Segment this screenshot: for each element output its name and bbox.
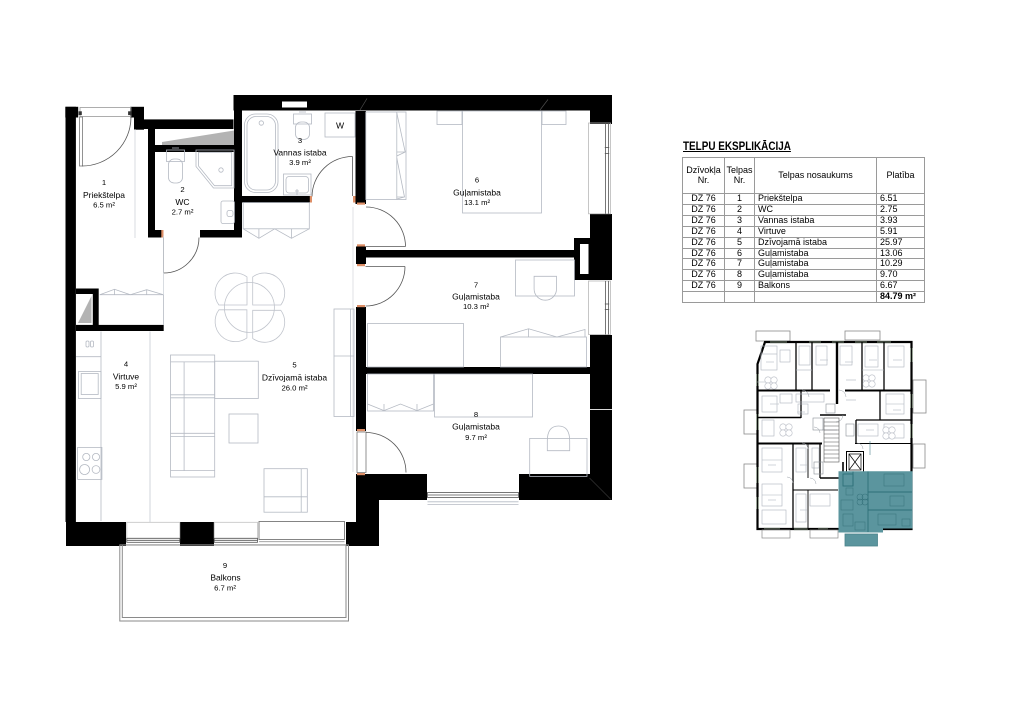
- svg-text:Guļamistaba: Guļamistaba: [453, 188, 501, 198]
- svg-text:3.9 m²: 3.9 m²: [289, 158, 311, 167]
- svg-text:1: 1: [102, 178, 106, 187]
- svg-text:5.9 m²: 5.9 m²: [115, 382, 137, 391]
- svg-text:Priekštelpa: Priekštelpa: [83, 190, 125, 200]
- svg-text:8: 8: [474, 410, 478, 419]
- svg-text:6.5 m²: 6.5 m²: [93, 201, 115, 210]
- svg-text:26.0 m²: 26.0 m²: [281, 384, 308, 393]
- svg-text:Virtuve: Virtuve: [113, 372, 140, 382]
- svg-text:Guļamistaba: Guļamistaba: [452, 292, 500, 302]
- svg-text:Vannas istaba: Vannas istaba: [273, 148, 327, 158]
- svg-text:4: 4: [124, 360, 129, 369]
- svg-text:6: 6: [475, 176, 479, 185]
- svg-text:9: 9: [223, 561, 227, 570]
- svg-text:9.7 m²: 9.7 m²: [465, 433, 487, 442]
- svg-text:WC: WC: [175, 197, 189, 207]
- svg-text:6.7 m²: 6.7 m²: [214, 584, 236, 593]
- svg-text:2.7 m²: 2.7 m²: [172, 208, 194, 217]
- svg-text:Balkons: Balkons: [210, 573, 240, 583]
- svg-text:2: 2: [180, 185, 184, 194]
- svg-text:7: 7: [474, 281, 478, 290]
- svg-text:W: W: [336, 121, 345, 131]
- svg-text:10.3 m²: 10.3 m²: [463, 302, 490, 311]
- svg-text:3: 3: [298, 136, 302, 145]
- svg-text:Guļamistaba: Guļamistaba: [452, 422, 500, 432]
- svg-text:Dzīvojamā istaba: Dzīvojamā istaba: [262, 373, 327, 383]
- svg-text:5: 5: [292, 361, 296, 370]
- svg-text:13.1 m²: 13.1 m²: [464, 198, 491, 207]
